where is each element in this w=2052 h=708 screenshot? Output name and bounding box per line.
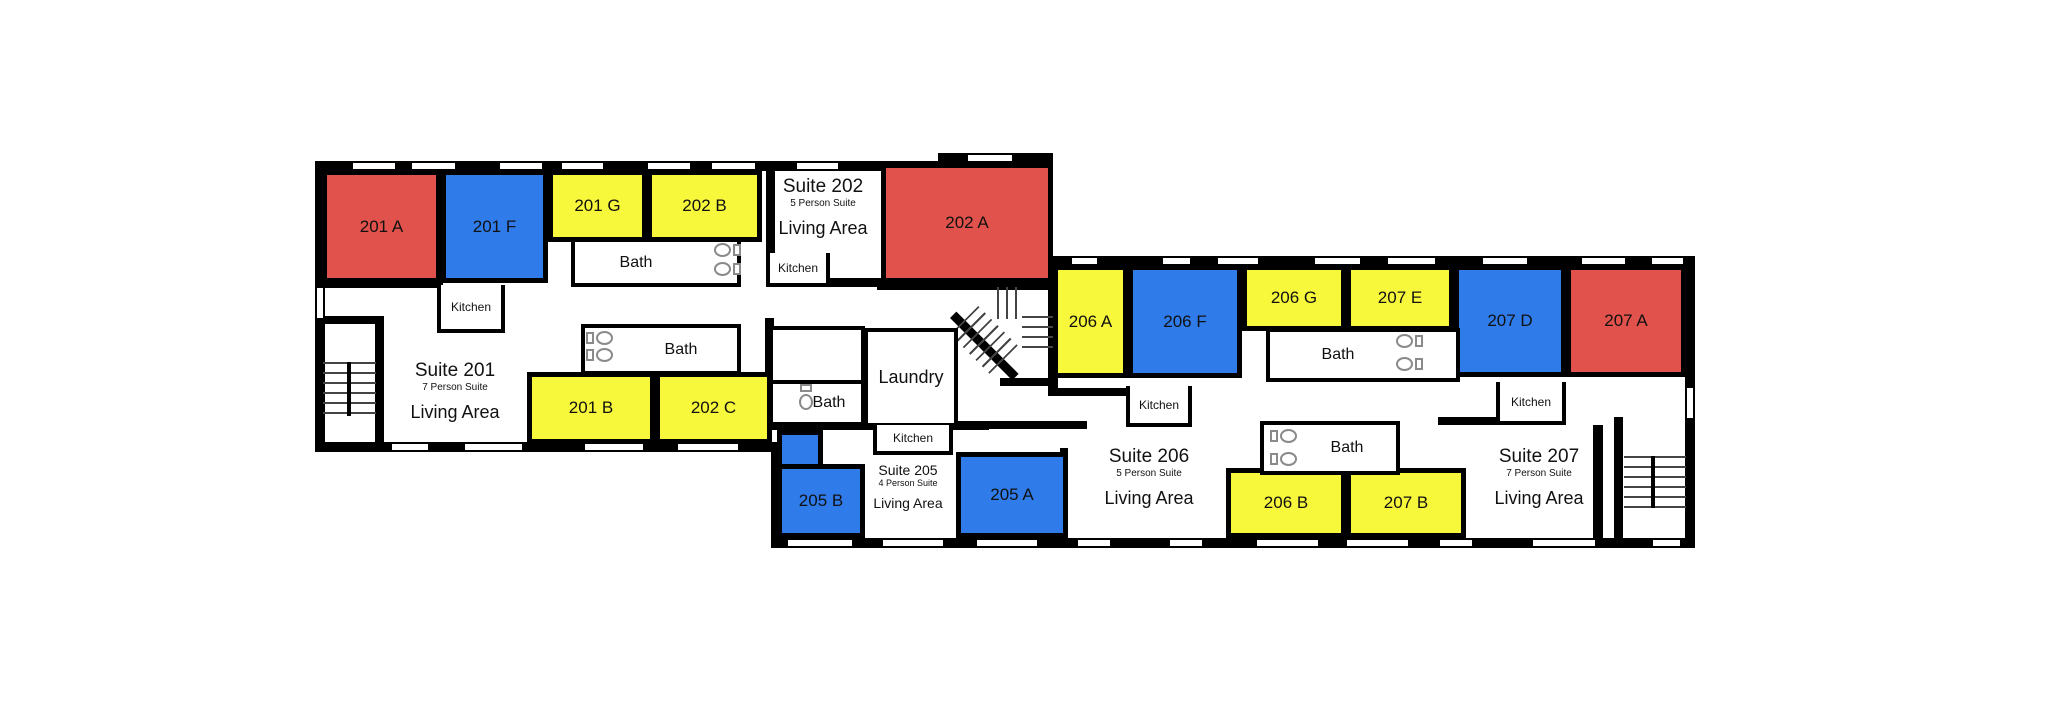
laundry-label: Laundry — [878, 367, 943, 388]
suite-206-label: Suite 206 5 Person Suite Living Area — [1085, 446, 1213, 509]
room-label: 202 C — [691, 398, 736, 418]
window — [1072, 256, 1097, 266]
kitchen-205: Kitchen — [873, 425, 953, 455]
utility-room — [769, 326, 865, 384]
room-206-f: 206 F — [1128, 265, 1242, 378]
window — [1685, 388, 1695, 418]
toilet-bowl — [714, 262, 731, 276]
room-206-a: 206 A — [1053, 265, 1128, 378]
toilet-icon — [586, 348, 613, 362]
window — [315, 288, 325, 318]
bath-upper-right: Bath — [1266, 328, 1460, 382]
suite-occupancy: 7 Person Suite — [1475, 468, 1603, 480]
toilet-bowl — [714, 243, 731, 257]
window — [465, 442, 522, 452]
window — [412, 161, 455, 171]
bath-label: Bath — [625, 341, 698, 359]
room-label: 205 A — [990, 485, 1034, 505]
window — [1652, 256, 1683, 266]
living-area-label: Living Area — [862, 495, 954, 511]
kitchen-201: Kitchen — [437, 285, 505, 333]
wall — [315, 316, 384, 324]
toilet-tank — [1415, 335, 1423, 347]
kitchen-202: Kitchen — [766, 253, 830, 287]
suite-205-label: Suite 205 4 Person Suite Living Area — [862, 462, 954, 512]
window — [500, 161, 542, 171]
toilet-tank — [800, 384, 812, 392]
room-207-a: 207 A — [1566, 265, 1686, 377]
window — [968, 153, 1012, 163]
suite-207-label: Suite 207 7 Person Suite Living Area — [1475, 446, 1603, 509]
kitchen-label: Kitchen — [778, 261, 818, 275]
room-label: 206 B — [1264, 493, 1308, 513]
window — [1257, 538, 1318, 548]
kitchen-206: Kitchen — [1126, 386, 1192, 427]
suite-title: Suite 202 — [768, 176, 878, 198]
toilet-tank — [1270, 453, 1278, 465]
window — [648, 161, 690, 171]
window — [1653, 538, 1680, 548]
window — [1440, 538, 1472, 548]
window — [977, 538, 1037, 548]
room-label: 206 A — [1069, 312, 1113, 332]
staircase-central-upper — [997, 287, 1023, 319]
toilet-bowl — [1396, 357, 1413, 371]
window — [712, 161, 755, 171]
room-206-b: 206 B — [1226, 468, 1346, 538]
living-area-label: Living Area — [1475, 488, 1603, 509]
room-201-a: 201 A — [322, 170, 441, 283]
living-area-label: Living Area — [1085, 488, 1213, 509]
window — [1483, 256, 1527, 266]
suite-title: Suite 201 — [380, 360, 530, 382]
toilet-tank — [733, 263, 741, 275]
window — [1163, 256, 1190, 266]
window — [1078, 538, 1110, 548]
window — [353, 161, 395, 171]
room-202-c: 202 C — [655, 372, 772, 444]
room-label: 201 A — [360, 217, 404, 237]
window — [1170, 538, 1202, 548]
room-201-f: 201 F — [441, 170, 548, 283]
toilet-tank — [586, 332, 594, 344]
kitchen-207: Kitchen — [1496, 382, 1566, 425]
toilet-icon — [799, 384, 813, 410]
toilet-bowl — [596, 348, 613, 362]
room-label: 206 G — [1271, 288, 1317, 308]
suite-202-label: Suite 202 5 Person Suite Living Area — [768, 176, 878, 239]
toilet-icon — [1270, 452, 1297, 466]
bath-label: Bath — [1322, 346, 1405, 364]
window — [1388, 256, 1435, 266]
room-label: 207 A — [1604, 311, 1648, 331]
room-202-b: 202 B — [647, 170, 762, 242]
room-207-b: 207 B — [1346, 468, 1466, 538]
window — [392, 442, 428, 452]
room-207-e: 207 E — [1346, 265, 1454, 331]
bath-small: Bath — [769, 380, 865, 426]
room-207-d: 207 D — [1454, 265, 1566, 377]
stair-rail — [1651, 456, 1655, 508]
window — [883, 538, 943, 548]
toilet-bowl — [799, 394, 813, 410]
toilet-icon — [1396, 357, 1423, 371]
room-201-b: 201 B — [527, 372, 655, 444]
room-label: 207 B — [1384, 493, 1428, 513]
toilet-tank — [733, 244, 741, 256]
window — [797, 161, 838, 171]
toilet-tank — [586, 349, 594, 361]
stair-rail — [347, 362, 351, 416]
suite-occupancy: 5 Person Suite — [1085, 468, 1213, 480]
bath-label: Bath — [620, 254, 693, 272]
room-205-b: 205 B — [777, 464, 865, 538]
toilet-bowl — [1280, 429, 1297, 443]
room-label: 201 G — [574, 196, 620, 216]
wall — [987, 421, 1087, 429]
suite-title: Suite 206 — [1085, 446, 1213, 468]
living-area-label: Living Area — [768, 218, 878, 239]
window — [1582, 256, 1625, 266]
kitchen-label: Kitchen — [1139, 398, 1179, 412]
wall — [1050, 388, 1130, 396]
suite-occupancy: 5 Person Suite — [768, 198, 878, 210]
suite-occupancy: 4 Person Suite — [862, 478, 954, 488]
room-label: 202 A — [945, 213, 989, 233]
suite-occupancy: 7 Person Suite — [380, 382, 530, 394]
kitchen-label: Kitchen — [1511, 395, 1551, 409]
floor-plan: 201 A 201 F 201 G 202 B 202 A 201 B 202 … — [0, 0, 2052, 708]
window — [562, 161, 603, 171]
living-area-label: Living Area — [380, 402, 530, 423]
toilet-tank — [1270, 430, 1278, 442]
room-label: 201 F — [473, 217, 516, 237]
room-label: 207 D — [1487, 311, 1532, 331]
toilet-icon — [1396, 334, 1423, 348]
window — [788, 538, 852, 548]
suite-title: Suite 205 — [862, 462, 954, 478]
toilet-tank — [1415, 358, 1423, 370]
staircase-right — [1624, 456, 1686, 508]
laundry-room: Laundry — [864, 328, 958, 427]
suite-title: Suite 207 — [1475, 446, 1603, 468]
room-205-a: 205 A — [956, 452, 1068, 538]
room-label: 207 E — [1378, 288, 1422, 308]
window — [1533, 538, 1595, 548]
wall — [1000, 378, 1055, 386]
kitchen-label: Kitchen — [893, 431, 933, 445]
room-label: 202 B — [682, 196, 726, 216]
bath-label: Bath — [1297, 439, 1364, 457]
room-202-a: 202 A — [881, 163, 1053, 283]
suite-201-label: Suite 201 7 Person Suite Living Area — [380, 360, 530, 423]
toilet-icon — [586, 331, 613, 345]
toilet-icon — [714, 243, 741, 257]
window — [585, 442, 643, 452]
toilet-bowl — [1280, 452, 1297, 466]
toilet-icon — [714, 262, 741, 276]
window — [1315, 256, 1360, 266]
window — [1347, 538, 1408, 548]
room-label: 206 F — [1163, 312, 1206, 332]
toilet-icon — [1270, 429, 1297, 443]
kitchen-label: Kitchen — [451, 300, 491, 314]
room-201-g: 201 G — [548, 170, 647, 242]
room-label: 205 B — [799, 491, 843, 511]
toilet-bowl — [596, 331, 613, 345]
bath-label: Bath — [789, 394, 846, 412]
toilet-bowl — [1396, 334, 1413, 348]
room-label: 201 B — [569, 398, 613, 418]
window — [678, 442, 738, 452]
staircase-central-side — [1022, 316, 1054, 350]
wall — [1614, 417, 1623, 544]
room-206-g: 206 G — [1242, 265, 1346, 331]
window — [1218, 256, 1258, 266]
